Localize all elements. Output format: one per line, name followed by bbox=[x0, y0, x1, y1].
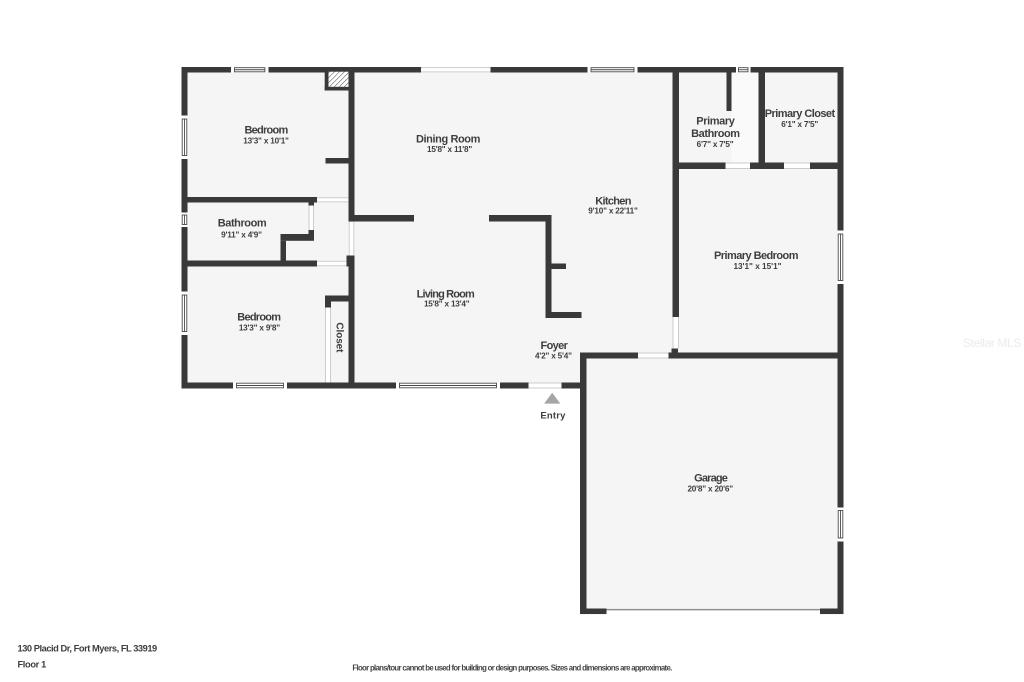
svg-text:6'1" x 7'5": 6'1" x 7'5" bbox=[781, 120, 818, 129]
svg-text:Bathroom: Bathroom bbox=[691, 128, 740, 140]
svg-text:9'11" x 4'9": 9'11" x 4'9" bbox=[221, 231, 262, 240]
svg-text:Primary Bedroom: Primary Bedroom bbox=[714, 250, 799, 262]
svg-text:Bedroom: Bedroom bbox=[237, 311, 281, 323]
svg-text:15'8" x 13'4": 15'8" x 13'4" bbox=[424, 300, 470, 309]
svg-text:130 Placid Dr, Fort Myers, FL: 130 Placid Dr, Fort Myers, FL 33919 bbox=[18, 644, 158, 654]
svg-text:Bathroom: Bathroom bbox=[218, 218, 267, 230]
svg-text:4'2" x 5'4": 4'2" x 5'4" bbox=[535, 352, 572, 361]
svg-text:Closet: Closet bbox=[333, 322, 344, 353]
svg-text:Foyer: Foyer bbox=[541, 340, 569, 352]
svg-text:Bedroom: Bedroom bbox=[244, 125, 288, 137]
svg-text:13'1" x 15'1": 13'1" x 15'1" bbox=[733, 262, 781, 271]
svg-text:Entry: Entry bbox=[540, 411, 566, 422]
svg-text:Garage: Garage bbox=[694, 473, 728, 485]
svg-text:Floor plans/tour cannot be use: Floor plans/tour cannot be used for buil… bbox=[352, 664, 672, 673]
svg-text:6'7" x 7'5": 6'7" x 7'5" bbox=[697, 140, 734, 149]
svg-text:Primary: Primary bbox=[696, 116, 736, 128]
svg-text:15'8" x 11'8": 15'8" x 11'8" bbox=[427, 145, 472, 154]
svg-text:Living Room: Living Room bbox=[417, 289, 475, 301]
svg-text:13'3" x 10'1": 13'3" x 10'1" bbox=[243, 137, 289, 146]
svg-text:Primary Closet: Primary Closet bbox=[765, 108, 836, 120]
svg-text:Floor 1: Floor 1 bbox=[18, 660, 47, 670]
svg-text:20'8" x 20'6": 20'8" x 20'6" bbox=[687, 484, 733, 493]
svg-text:13'3" x 9'8": 13'3" x 9'8" bbox=[239, 324, 280, 333]
svg-text:Stellar MLS: Stellar MLS bbox=[963, 336, 1021, 350]
svg-text:Dining Room: Dining Room bbox=[416, 133, 481, 145]
svg-text:9'10" x 22'11": 9'10" x 22'11" bbox=[588, 207, 638, 216]
